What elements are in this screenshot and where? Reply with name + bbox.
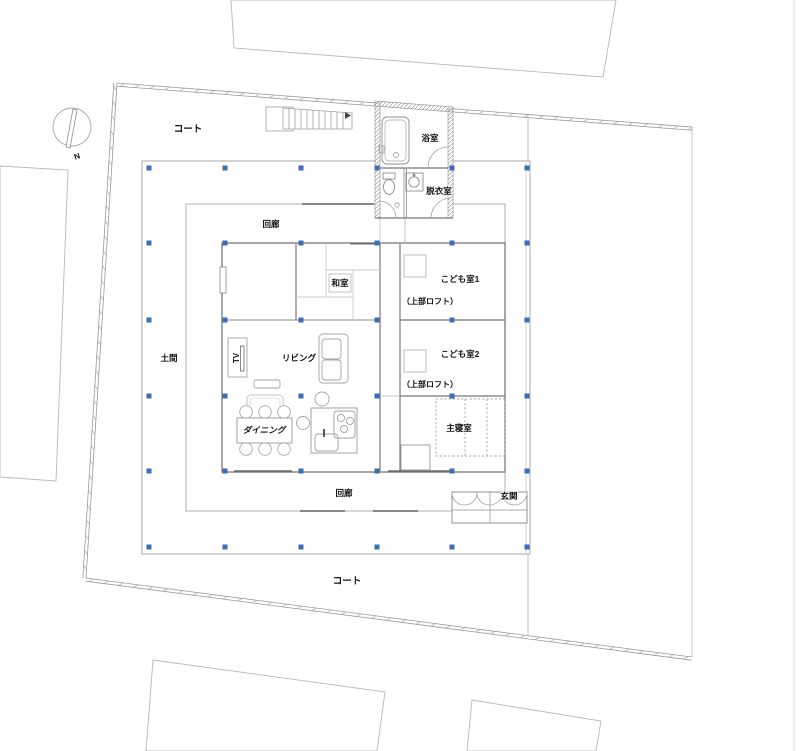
bathroom-block: [375, 101, 453, 218]
dining-chair: [240, 406, 253, 419]
column-marker: [375, 545, 380, 550]
column-marker: [525, 394, 530, 399]
column-marker: [147, 394, 152, 399]
neighbor-building-bottom-right: [467, 700, 601, 751]
neighbor-building-top: [231, 0, 616, 77]
round-stool: [297, 417, 310, 430]
column-marker: [147, 241, 152, 246]
label-kids2: こども室2: [441, 349, 480, 359]
labels: コート コート 回廊 回廊 浴室 脱衣室 和室 こども室1 （上部ロフト） こど…: [73, 124, 517, 587]
label-dressing: 脱衣室: [426, 186, 452, 196]
label-court-top: コート: [174, 124, 203, 135]
floor-plan-canvas: コート コート 回廊 回廊 浴室 脱衣室 和室 こども室1 （上部ロフト） こど…: [0, 0, 800, 751]
column-marker: [223, 469, 228, 474]
label-entrance: 玄関: [500, 491, 517, 501]
label-tatami: 和室: [331, 278, 349, 288]
kitchen-island: [311, 408, 357, 453]
column-marker: [299, 469, 304, 474]
label-master-bedroom: 主寝室: [446, 423, 472, 433]
label-north: N: [73, 151, 81, 161]
column-marker: [147, 545, 152, 550]
column-marker: [450, 469, 455, 474]
column-marker: [525, 241, 530, 246]
column-marker: [147, 469, 152, 474]
dining-chair: [278, 406, 291, 419]
column-marker: [525, 545, 530, 550]
label-bath: 浴室: [421, 133, 439, 143]
living-bench: [254, 380, 280, 388]
label-kids1: こども室1: [441, 274, 480, 284]
label-tv: TV: [232, 352, 241, 363]
column-marker: [525, 166, 530, 171]
dining-chair: [259, 443, 272, 456]
column-marker: [525, 318, 530, 323]
column-marker: [147, 318, 152, 323]
column-marker: [299, 394, 304, 399]
column-marker: [375, 318, 380, 323]
label-corridor-bottom: 回廊: [335, 488, 353, 498]
kids1-desk: [404, 255, 426, 277]
dining-chair: [278, 443, 291, 456]
property-context-lines: [528, 0, 794, 751]
stairs: [266, 107, 352, 131]
column-marker: [299, 318, 304, 323]
label-corridor-top: 回廊: [262, 219, 280, 229]
column-marker: [375, 241, 380, 246]
label-living: リビング: [282, 353, 317, 363]
column-marker: [299, 166, 304, 171]
label-kids2-loft: （上部ロフト）: [402, 379, 458, 389]
column-marker: [450, 545, 455, 550]
column-marker: [450, 241, 455, 246]
bedroom-furniture: [401, 255, 505, 470]
column-marker: [147, 166, 152, 171]
neighbor-building-bottom-left: [146, 660, 385, 751]
label-dining: ダイニング: [243, 425, 287, 435]
column-marker: [450, 166, 455, 171]
column-marker: [375, 394, 380, 399]
label-court-bottom: コート: [333, 576, 362, 587]
column-marker: [223, 166, 228, 171]
column-marker: [299, 545, 304, 550]
column-marker: [299, 241, 304, 246]
sofa: [319, 334, 348, 383]
column-marker: [450, 318, 455, 323]
round-table: [315, 392, 329, 406]
column-marker: [223, 545, 228, 550]
column-marker: [223, 394, 228, 399]
label-doma: 土間: [160, 353, 177, 363]
kids2-desk: [404, 350, 426, 372]
label-kids1-loft: （上部ロフト）: [402, 296, 458, 306]
column-marker: [223, 318, 228, 323]
neighbor-building-left: [0, 166, 68, 481]
column-marker: [525, 469, 530, 474]
floor-plan-drawing: コート コート 回廊 回廊 浴室 脱衣室 和室 こども室1 （上部ロフト） こど…: [0, 0, 800, 751]
column-marker: [375, 166, 380, 171]
dining-chair: [240, 443, 253, 456]
north-arrow-icon: [53, 108, 91, 148]
bedroom-closet: [401, 445, 430, 470]
column-marker: [450, 394, 455, 399]
dining-chair: [259, 406, 272, 419]
column-marker: [375, 469, 380, 474]
pocket-door: [220, 267, 226, 293]
column-marker: [223, 241, 228, 246]
